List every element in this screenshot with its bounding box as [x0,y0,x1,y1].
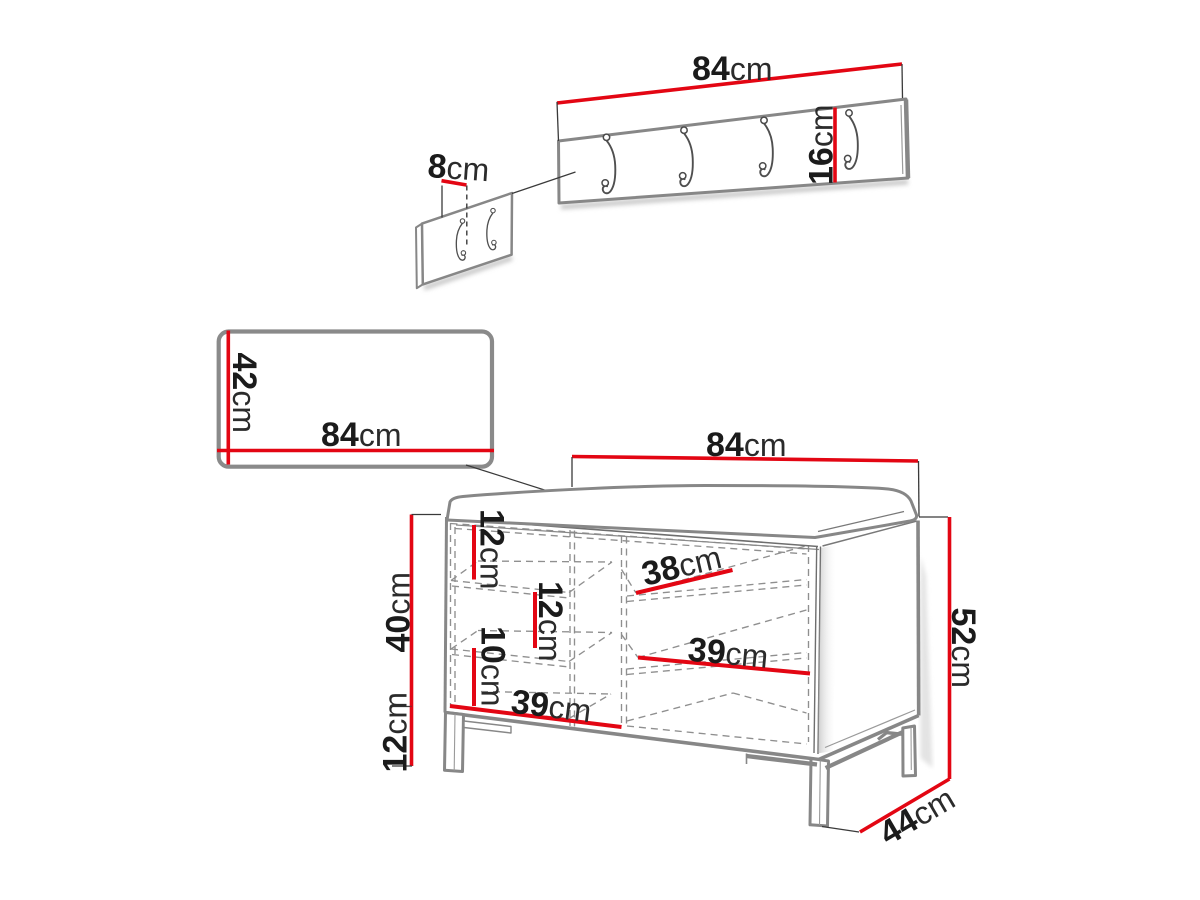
svg-text:40cm: 40cm [380,572,418,652]
svg-text:84cm: 84cm [321,416,401,454]
svg-text:12cm: 12cm [531,581,569,661]
svg-text:44cm: 44cm [873,779,962,853]
svg-text:10cm: 10cm [474,626,512,706]
svg-text:38cm: 38cm [638,538,725,594]
svg-text:84cm: 84cm [692,50,772,88]
svg-text:52cm: 52cm [944,608,982,688]
svg-text:16cm: 16cm [803,105,841,185]
svg-text:12cm: 12cm [377,692,415,772]
svg-text:8cm: 8cm [426,147,490,189]
svg-text:42cm: 42cm [225,353,263,433]
svg-text:39cm: 39cm [686,631,770,676]
svg-text:84cm: 84cm [706,426,786,464]
svg-text:12cm: 12cm [473,509,511,589]
